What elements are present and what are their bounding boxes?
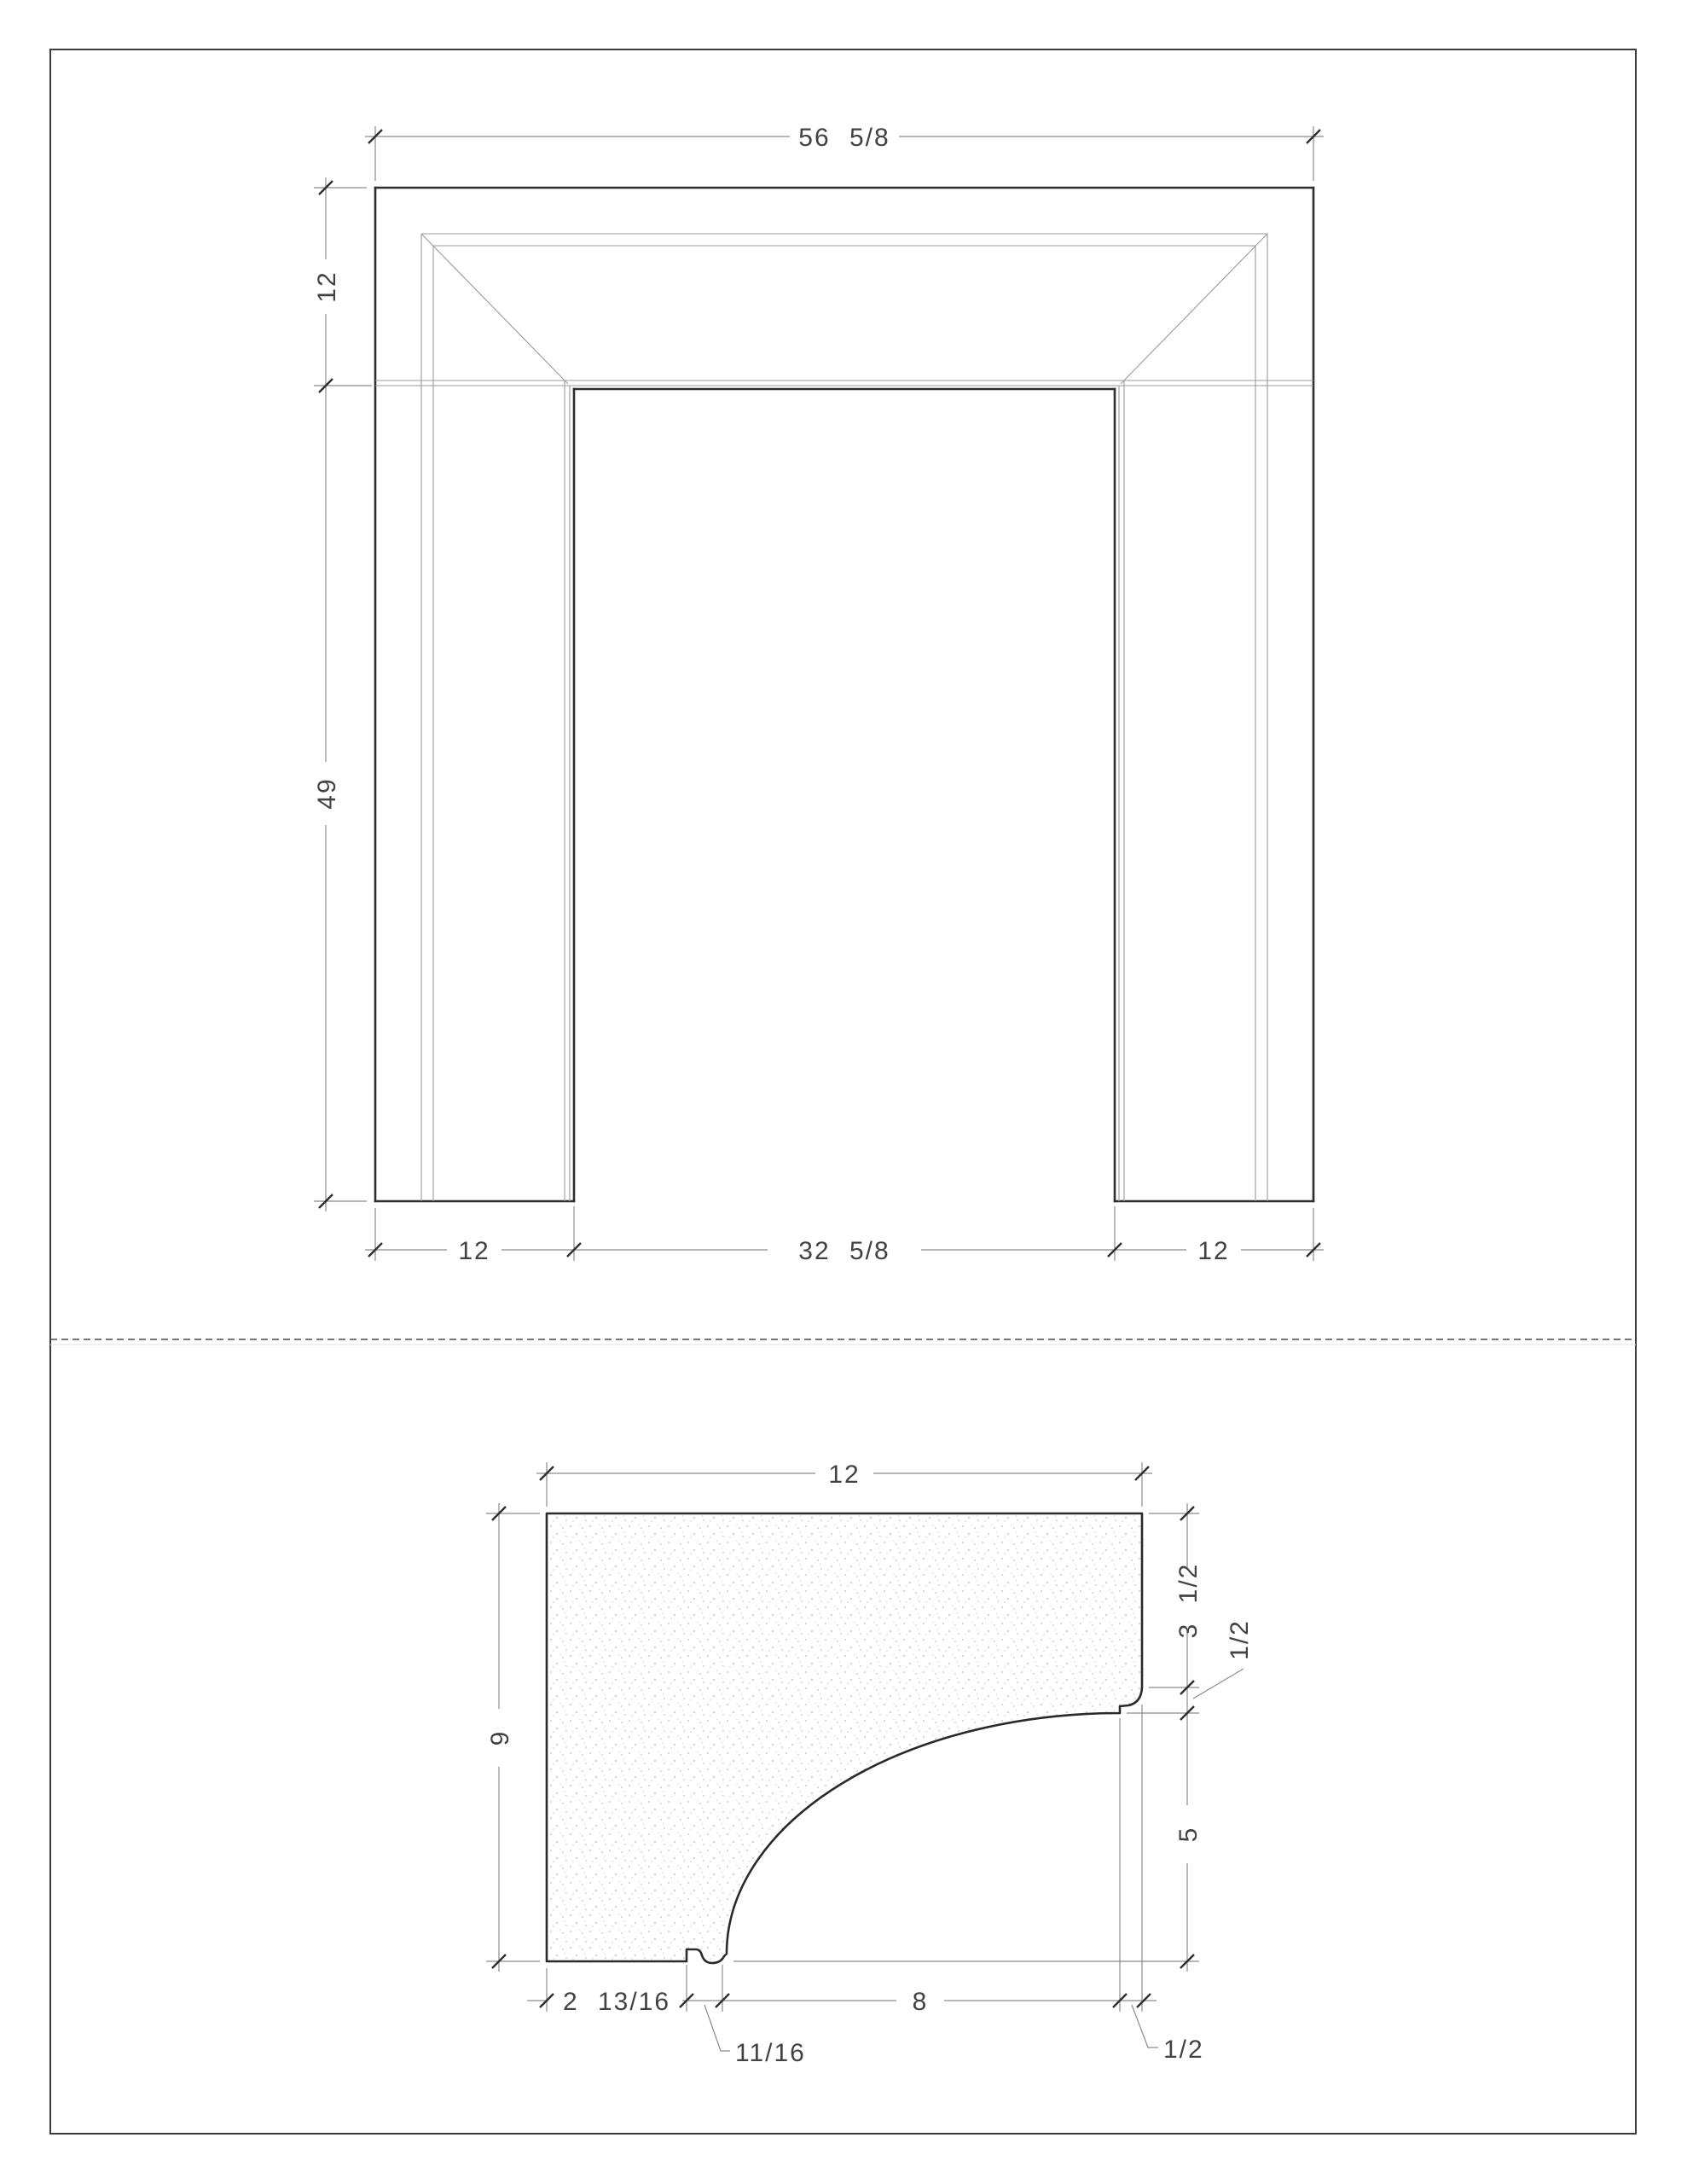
dim-label-left-leg-width: 12: [458, 1237, 490, 1265]
dim-label-leg-height: 49: [313, 777, 341, 809]
dim-label-right-leg-width: 12: [1197, 1237, 1229, 1265]
leader-ogee-height: [1193, 1669, 1244, 1699]
drawing-sheet: 56 5/8 12 49: [0, 0, 1687, 2184]
elevation-outline: [375, 188, 1313, 1201]
dim-bottom-widths: 12 32 5/8 12: [365, 1206, 1324, 1265]
dim-left-heights: 12 49: [313, 177, 372, 1211]
dim-label-cove-rise: 5: [1174, 1827, 1203, 1843]
dim-label-opening-width: 32 5/8: [798, 1237, 890, 1265]
dim-label-upper-right-height: 3 1/2: [1174, 1563, 1203, 1639]
section-profile: [547, 1513, 1142, 1963]
dim-label-section-height: 9: [486, 1730, 514, 1746]
dim-overall-width: 56 5/8: [365, 124, 1324, 181]
leader-groove-width: [704, 2005, 730, 2051]
section-drawing: 12 9 3 1/2 5 1/2: [486, 1461, 1254, 2067]
elevation-drawing: 56 5/8 12 49: [313, 124, 1324, 1265]
dim-label-frieze-height: 12: [313, 270, 341, 302]
dim-label-groove-width: 11/16: [735, 2039, 806, 2067]
miter-diagonal-left: [421, 234, 568, 384]
dim-label-bottom-left-width: 2 13/16: [563, 1988, 670, 2016]
dim-label-cove-run: 8: [913, 1988, 929, 2016]
dim-label-ogee-height: 1/2: [1226, 1619, 1254, 1660]
dim-label-section-width: 12: [828, 1461, 860, 1489]
leader-right-step-width: [1132, 2005, 1158, 2047]
dim-label-right-step-width: 1/2: [1163, 2036, 1204, 2064]
dim-section-height: 9: [486, 1503, 540, 1972]
sheet-border: [50, 49, 1636, 2134]
miter-diagonal-right: [1121, 234, 1267, 384]
dim-label-overall-width: 56 5/8: [798, 124, 890, 152]
cad-canvas: 56 5/8 12 49: [0, 0, 1687, 2184]
dim-section-width: 12: [536, 1461, 1152, 1507]
elevation-moulding-lines: [375, 234, 1313, 1201]
